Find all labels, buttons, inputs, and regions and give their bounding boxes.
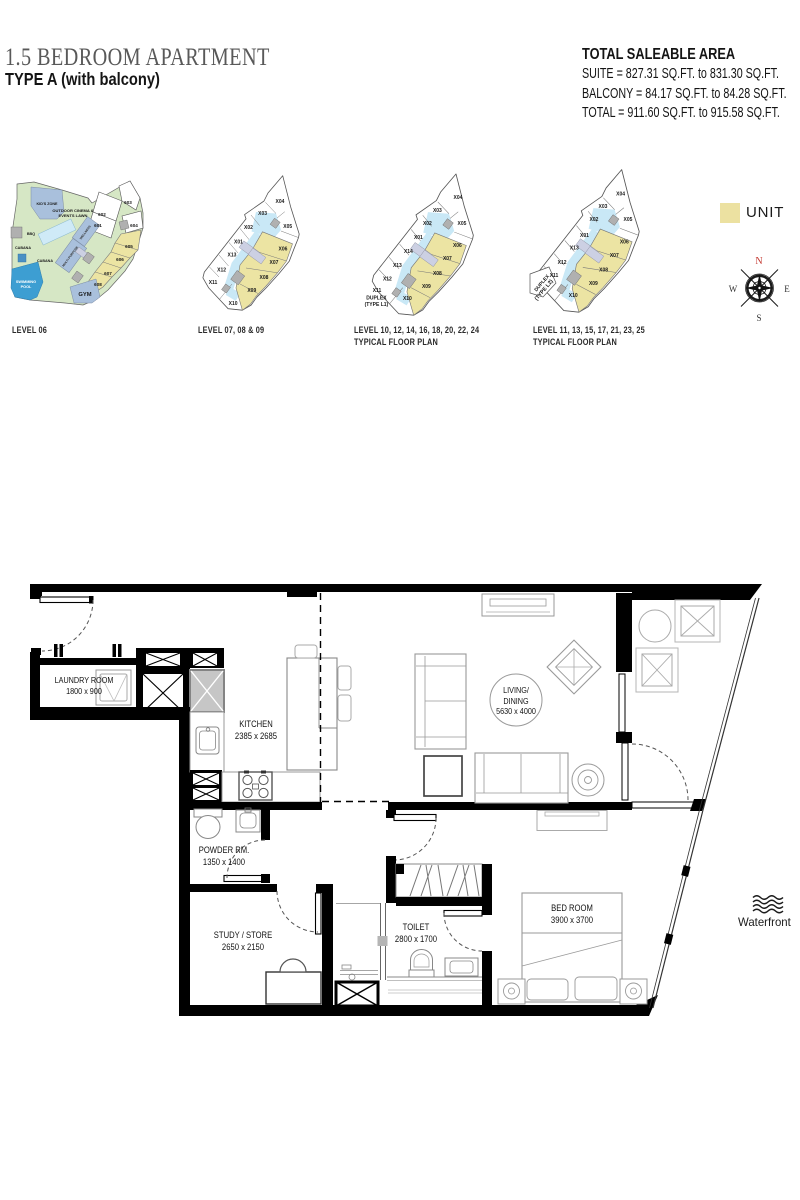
svg-text:X10: X10	[229, 301, 238, 307]
svg-text:607: 607	[104, 271, 112, 276]
svg-text:X05: X05	[624, 217, 633, 223]
svg-text:SWIMMING: SWIMMING	[16, 280, 36, 284]
svg-text:X05: X05	[458, 221, 467, 227]
svg-text:X09: X09	[589, 281, 598, 287]
svg-text:X02: X02	[423, 221, 432, 227]
svg-text:DUPLEX: DUPLEX	[366, 296, 387, 302]
svg-text:X08: X08	[599, 268, 608, 274]
svg-text:X06: X06	[453, 243, 462, 249]
svg-text:X03: X03	[258, 211, 267, 217]
svg-text:X12: X12	[217, 268, 226, 274]
svg-text:X13: X13	[393, 263, 402, 269]
svg-text:601: 601	[94, 223, 102, 228]
svg-text:X01: X01	[234, 240, 243, 246]
svg-text:X03: X03	[599, 204, 608, 210]
svg-text:X07: X07	[270, 260, 279, 266]
svg-text:604: 604	[130, 223, 138, 228]
svg-text:X06: X06	[279, 247, 288, 253]
svg-text:X09: X09	[247, 288, 256, 294]
svg-text:X01: X01	[414, 235, 423, 241]
svg-text:605: 605	[125, 244, 133, 249]
svg-text:X08: X08	[260, 275, 269, 281]
svg-text:X11: X11	[209, 280, 218, 286]
svg-text:POOL: POOL	[21, 285, 32, 289]
svg-text:CABANA: CABANA	[15, 246, 31, 250]
svg-text:X01: X01	[580, 233, 589, 239]
svg-text:X05: X05	[283, 224, 292, 230]
svg-text:KID'S ZONE: KID'S ZONE	[37, 202, 58, 206]
svg-text:BBQ: BBQ	[27, 232, 35, 236]
svg-text:X04: X04	[454, 195, 463, 201]
svg-text:602: 602	[98, 212, 106, 217]
svg-text:X11: X11	[550, 273, 559, 279]
svg-text:X09: X09	[422, 284, 431, 290]
svg-text:X06: X06	[620, 239, 629, 245]
svg-text:GYM: GYM	[78, 292, 91, 298]
svg-text:603: 603	[124, 200, 132, 205]
svg-text:X13: X13	[570, 246, 579, 252]
svg-text:X08: X08	[433, 271, 442, 277]
svg-text:N: N	[755, 256, 762, 267]
svg-text:X11: X11	[373, 288, 382, 294]
svg-text:W: W	[729, 284, 738, 294]
svg-text:(TYPE L1): (TYPE L1)	[365, 302, 389, 308]
svg-text:X02: X02	[590, 217, 599, 223]
svg-text:EVENTS LAWN: EVENTS LAWN	[59, 213, 88, 218]
svg-text:X12: X12	[558, 260, 567, 266]
svg-text:S: S	[756, 313, 761, 323]
svg-text:X07: X07	[610, 253, 619, 259]
svg-text:X14: X14	[404, 249, 413, 255]
svg-text:CABANA: CABANA	[37, 259, 53, 263]
svg-text:606: 606	[116, 257, 124, 262]
svg-text:X13: X13	[228, 253, 237, 259]
svg-text:E: E	[784, 284, 790, 294]
svg-text:X04: X04	[276, 199, 285, 205]
svg-text:X10: X10	[403, 296, 412, 302]
svg-text:X02: X02	[244, 225, 253, 231]
svg-text:X07: X07	[443, 256, 452, 262]
svg-text:608: 608	[94, 282, 102, 287]
svg-text:X03: X03	[433, 208, 442, 214]
svg-text:X10: X10	[569, 293, 578, 299]
svg-text:X04: X04	[616, 192, 625, 198]
svg-text:X12: X12	[383, 276, 392, 282]
